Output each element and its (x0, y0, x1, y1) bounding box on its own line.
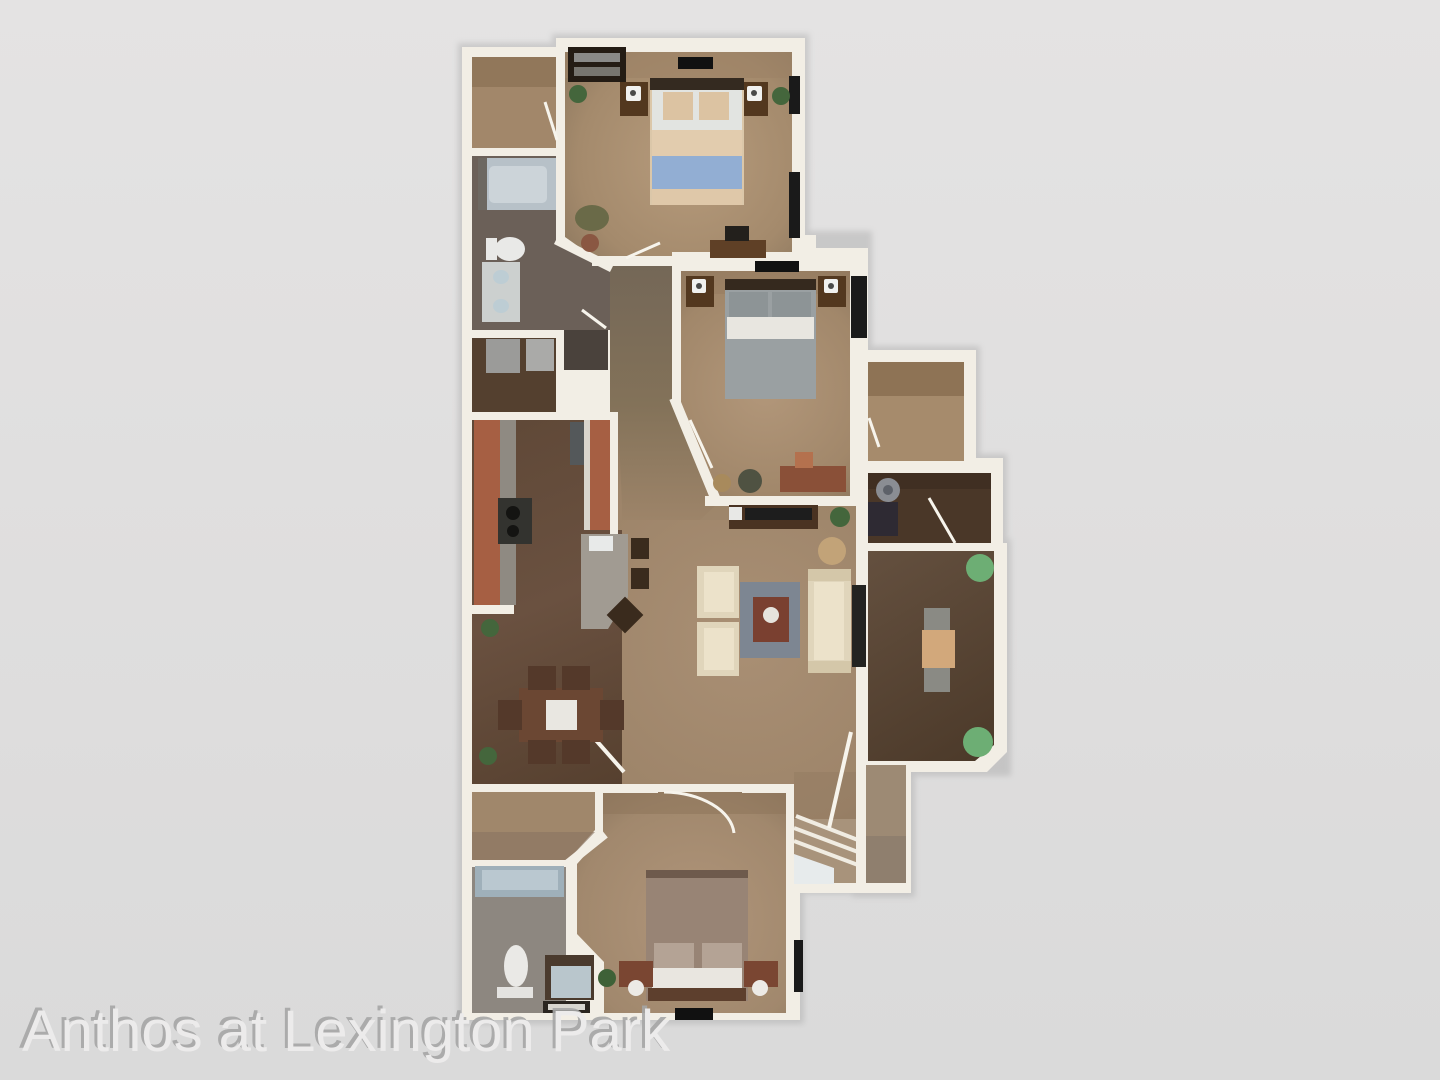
svg-text:Anthos at Lexington Park: Anthos at Lexington Park (22, 999, 671, 1064)
